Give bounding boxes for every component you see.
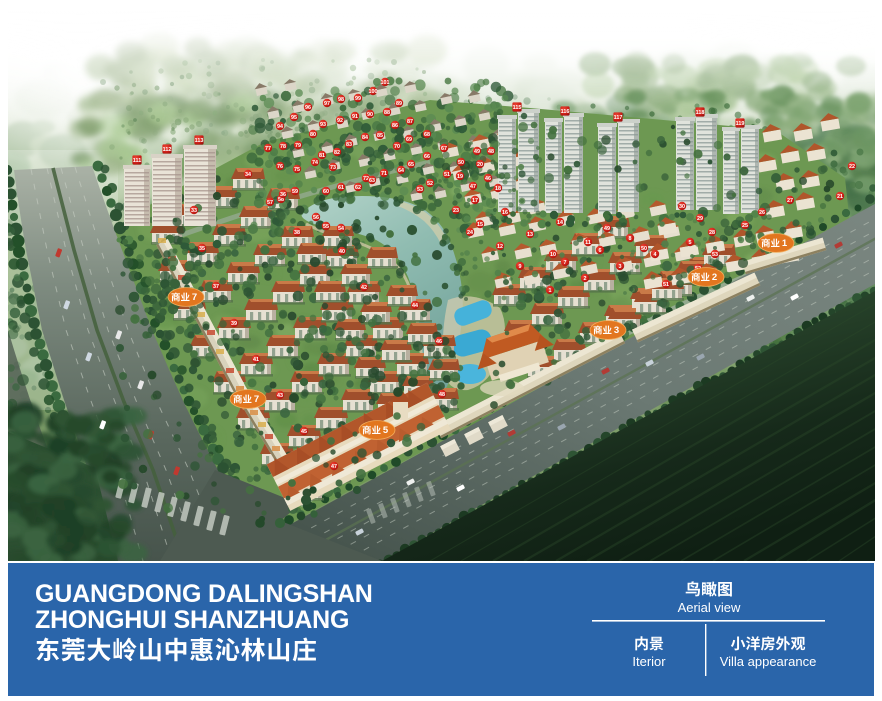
svg-text:Villa appearance: Villa appearance [720,654,817,669]
svg-text:14: 14 [557,220,563,226]
svg-text:71: 71 [381,171,387,177]
svg-text:ZHONGHUI SHANZHUANG: ZHONGHUI SHANZHUANG [35,606,349,634]
svg-text:33: 33 [191,208,197,214]
svg-text:2: 2 [712,272,717,283]
svg-text:97: 97 [324,101,330,107]
svg-text:75: 75 [294,167,300,173]
svg-text:48: 48 [488,149,494,155]
svg-text:21: 21 [837,194,843,200]
svg-text:73: 73 [330,165,336,171]
svg-text:69: 69 [406,137,412,143]
svg-text:Aerial view: Aerial view [678,600,741,615]
svg-text:1: 1 [782,238,788,249]
svg-text:53: 53 [417,187,423,193]
svg-text:51: 51 [444,172,450,178]
svg-text:112: 112 [163,147,172,153]
svg-text:65: 65 [408,162,414,168]
svg-text:4: 4 [654,252,657,258]
svg-text:30: 30 [679,204,685,210]
svg-text:82: 82 [334,150,340,156]
svg-text:85: 85 [377,133,383,139]
svg-text:43: 43 [277,393,283,399]
svg-text:63: 63 [369,178,375,184]
svg-text:94: 94 [277,124,283,130]
svg-text:Iterior: Iterior [632,654,666,669]
svg-text:87: 87 [407,119,413,125]
svg-text:64: 64 [398,168,404,174]
svg-text:28: 28 [709,230,715,236]
svg-text:57: 57 [267,200,273,206]
svg-text:47: 47 [470,184,476,190]
svg-text:18: 18 [495,186,501,192]
svg-text:40: 40 [339,249,345,255]
svg-text:42: 42 [361,285,367,291]
svg-text:11: 11 [585,240,591,246]
svg-text:15: 15 [477,222,483,228]
svg-text:7: 7 [192,292,197,303]
svg-text:46: 46 [485,176,491,182]
svg-text:13: 13 [527,232,533,238]
svg-text:27: 27 [787,198,793,204]
svg-text:91: 91 [352,114,358,120]
svg-text:80: 80 [310,132,316,138]
svg-text:5: 5 [689,240,692,246]
svg-text:84: 84 [362,135,368,141]
svg-text:3: 3 [619,264,622,270]
svg-text:10: 10 [550,252,556,258]
svg-text:90: 90 [367,112,373,118]
svg-text:7: 7 [564,260,567,266]
svg-text:101: 101 [381,80,390,86]
svg-text:49: 49 [604,226,610,232]
svg-text:83: 83 [346,142,352,148]
svg-text:95: 95 [291,115,297,121]
svg-text:2: 2 [584,276,587,282]
svg-text:22: 22 [849,164,855,170]
svg-text:GUANGDONG DALINGSHAN: GUANGDONG DALINGSHAN [35,580,373,608]
svg-text:70: 70 [394,144,400,150]
svg-text:50: 50 [641,246,647,252]
svg-text:39: 39 [231,321,237,327]
svg-text:66: 66 [424,154,430,160]
svg-text:29: 29 [697,216,703,222]
svg-text:6: 6 [599,248,602,254]
svg-text:53: 53 [712,252,718,258]
svg-text:44: 44 [412,303,418,309]
svg-text:37: 37 [213,284,219,290]
svg-text:1: 1 [549,288,552,294]
svg-text:113: 113 [195,138,204,144]
svg-text:116: 116 [561,109,570,115]
svg-text:5: 5 [383,425,389,436]
svg-text:76: 76 [277,164,283,170]
svg-text:46: 46 [436,339,442,345]
svg-text:8: 8 [629,236,632,242]
svg-text:36: 36 [280,192,286,198]
svg-text:93: 93 [320,122,326,128]
svg-text:96: 96 [305,105,311,111]
svg-text:17: 17 [472,198,478,204]
svg-text:67: 67 [441,146,447,152]
svg-text:35: 35 [199,246,205,252]
svg-text:34: 34 [245,172,251,178]
svg-text:118: 118 [696,110,705,116]
svg-text:79: 79 [295,143,301,149]
svg-text:56: 56 [313,215,319,221]
svg-text:61: 61 [338,185,344,191]
svg-text:59: 59 [292,189,298,195]
svg-text:98: 98 [338,97,344,103]
svg-text:81: 81 [319,153,325,159]
svg-text:12: 12 [497,244,503,250]
svg-text:88: 88 [384,110,390,116]
svg-text:115: 115 [513,105,522,111]
svg-text:3: 3 [614,325,619,336]
svg-text:16: 16 [502,210,508,216]
svg-text:45: 45 [301,429,307,435]
svg-text:19: 19 [457,174,463,180]
svg-text:26: 26 [759,210,765,216]
svg-text:47: 47 [331,464,337,470]
svg-text:100: 100 [369,89,378,95]
svg-text:24: 24 [467,230,473,236]
svg-text:23: 23 [453,208,459,214]
svg-text:117: 117 [614,115,623,121]
svg-text:86: 86 [392,123,398,129]
svg-text:7: 7 [254,394,259,405]
svg-text:99: 99 [355,96,361,102]
svg-text:25: 25 [742,223,748,229]
svg-text:51: 51 [663,282,669,288]
svg-text:50: 50 [458,160,464,166]
svg-text:74: 74 [312,160,318,166]
svg-text:55: 55 [323,224,329,230]
svg-text:92: 92 [337,118,343,124]
svg-text:49: 49 [474,149,480,155]
svg-text:52: 52 [427,181,433,187]
svg-text:9: 9 [519,264,522,270]
svg-text:77: 77 [265,146,271,152]
svg-text:119: 119 [736,121,745,127]
svg-text:48: 48 [439,392,445,398]
svg-text:60: 60 [323,189,329,195]
svg-text:78: 78 [280,144,286,150]
svg-text:68: 68 [424,132,430,138]
svg-text:62: 62 [355,185,361,191]
svg-text:41: 41 [253,357,259,363]
svg-text:89: 89 [396,101,402,107]
svg-text:38: 38 [294,230,300,236]
svg-text:54: 54 [338,226,344,232]
svg-text:20: 20 [477,162,483,168]
svg-text:111: 111 [133,158,141,164]
